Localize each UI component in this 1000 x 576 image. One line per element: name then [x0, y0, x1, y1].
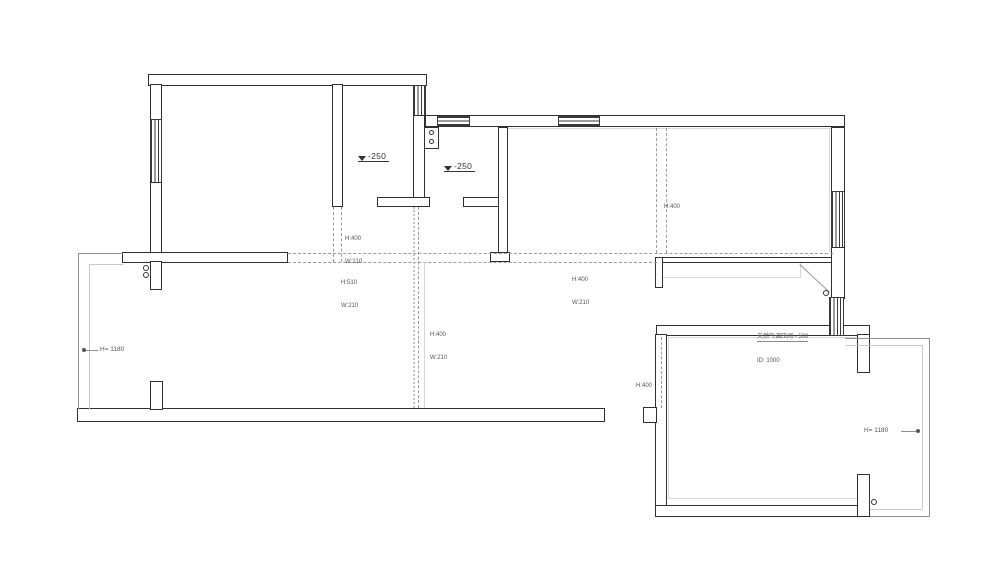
balcony-rail-bottom-inner	[870, 509, 922, 510]
beam-line-v3-a	[656, 128, 657, 253]
leader-line-left	[86, 350, 98, 351]
wall-top-exterior-high	[148, 74, 427, 86]
gas-stove-burner-2	[429, 139, 434, 144]
wall-bedroom-left-bump	[643, 407, 657, 423]
wall-bedroom-right-upper	[857, 334, 870, 373]
beam-label-line1: H:400	[572, 277, 589, 285]
beam-line-h-upper	[288, 253, 833, 254]
elevation-triangle-icon	[444, 166, 452, 171]
face-line-bedroom-bottom	[668, 498, 857, 499]
wall-terrace-bottom	[77, 408, 605, 422]
wall-terrace-pillar	[150, 381, 163, 410]
corner-shower-diagonal	[799, 264, 830, 293]
window-top-livingroom	[558, 116, 600, 126]
beam-label-line2: W:210	[572, 300, 589, 308]
balcony-rail-right-outer	[929, 338, 930, 517]
beam-line-v2-b	[418, 207, 419, 408]
wall-bedroom-bottom	[655, 505, 870, 517]
beam-label-line1: H:400	[430, 332, 447, 340]
terrace-rail-left-outer	[78, 253, 79, 409]
balcony-drain	[871, 499, 877, 505]
face-line-bath-counter	[663, 277, 800, 278]
beam-label-line1: H:510	[341, 280, 358, 288]
wall-bedroom-right-lower	[857, 474, 870, 517]
wall-top-exterior-low	[425, 115, 845, 127]
elevation-triangle-icon	[358, 156, 366, 161]
wall-kitchen-right	[498, 127, 508, 253]
beam-line-v2-a	[413, 207, 415, 408]
leader-dot-right	[916, 429, 920, 433]
beam-label-3: H:400 W:210	[572, 262, 589, 322]
beam-label-4: H:400 W:210	[430, 317, 447, 377]
shower-drain	[823, 290, 829, 296]
beam-line-v1-b	[341, 207, 342, 262]
beam-label-6: H:400	[636, 368, 652, 406]
gas-stove-burner-1	[429, 130, 434, 135]
window-right-livingroom	[831, 191, 845, 249]
beam-line-h-lower	[288, 262, 657, 263]
wall-left-upper	[150, 84, 162, 121]
railing-height-label-right: H= 1180	[864, 427, 888, 434]
beam-label-line2: W:210	[430, 355, 447, 363]
terrace-rail-top-outer	[78, 253, 123, 254]
wall-right-exterior-mid	[831, 247, 845, 299]
window-top-kitchen	[437, 116, 470, 126]
elevation-marker-1: -250	[358, 146, 389, 164]
railing-height-label-left: H= 1180	[100, 346, 124, 353]
balcony-rail-bottom-outer	[870, 516, 930, 517]
leader-line-right	[901, 431, 916, 432]
water-riser-pipe-1	[143, 265, 149, 271]
beam-label-line2: W:210	[341, 303, 358, 311]
wall-room1-bottom-stub	[377, 197, 430, 207]
wall-cross-horizontal	[122, 252, 288, 263]
wall-left-mid	[150, 182, 162, 254]
beam-label-line1: H:400	[345, 236, 362, 244]
face-line-livingroom-top	[508, 128, 831, 129]
terrace-rail-left-inner	[89, 264, 90, 409]
elevation-marker-2: -250	[444, 156, 475, 174]
balcony-rail-top-outer	[845, 338, 930, 339]
terrace-rail-top-inner	[89, 264, 123, 265]
beam-label-line1: H:400	[636, 383, 652, 391]
balcony-rail-right-inner	[922, 345, 923, 509]
beam-line-v2-face	[424, 262, 425, 408]
gas-pipe-note: 天然气调压阀 - 500 ID: 1000	[757, 318, 808, 381]
face-line-livingroom-right	[829, 128, 830, 252]
face-line-bedroom-left	[668, 337, 669, 499]
wall-left-lower-stub	[150, 261, 162, 290]
balcony-rail-top-inner	[845, 345, 922, 346]
wall-kitchen-bottom	[463, 197, 500, 207]
beam-line-v1-a	[333, 207, 334, 262]
water-riser-pipe-2	[143, 272, 149, 278]
window-pipe-shaft	[829, 297, 844, 336]
wall-bath-top	[657, 257, 832, 263]
beam-label-5: H:400	[664, 189, 680, 227]
beam-label-2: H:510 W:210	[341, 265, 358, 325]
gas-note-line1: 天然气调压阀 - 500	[757, 334, 808, 343]
floor-plan-canvas: -250 -250 H:400 W:210 H:510 W:210 H:400 …	[0, 0, 1000, 576]
wall-interior-room1-right	[332, 84, 343, 207]
gas-note-line2: ID: 1000	[757, 358, 808, 366]
wall-right-exterior-upper	[831, 127, 845, 193]
beam-line-v4	[661, 337, 662, 408]
window-room1-right	[413, 85, 426, 117]
beam-label-line1: H:400	[664, 204, 680, 212]
window-left-wall	[150, 119, 162, 184]
